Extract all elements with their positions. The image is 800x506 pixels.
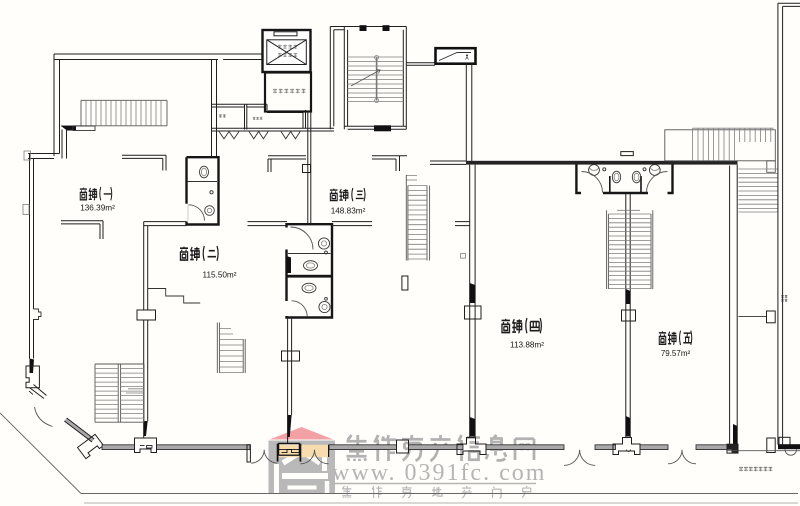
svg-text:136.39m²: 136.39m² [80,204,115,213]
svg-text:www. 0391fc. com: www. 0391fc. com [332,460,546,486]
svg-text:115.50m²: 115.50m² [203,271,237,280]
svg-text:79.57m²: 79.57m² [661,349,691,358]
svg-text:148.83m²: 148.83m² [331,207,366,216]
svg-text:113.88m²: 113.88m² [510,341,544,350]
